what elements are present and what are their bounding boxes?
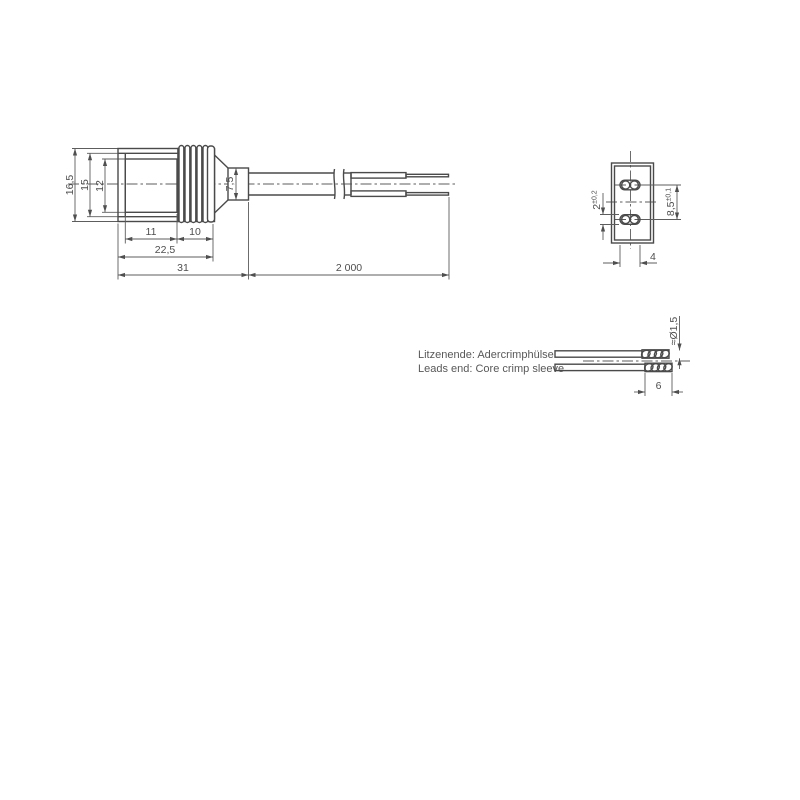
lead-top bbox=[555, 349, 671, 359]
dim-slot-width-4: 4 bbox=[603, 245, 657, 267]
dim-label-31: 31 bbox=[177, 262, 189, 274]
dim-sleeve-length-6: 6 bbox=[634, 373, 683, 396]
dim-height-16-5: 16,5 bbox=[64, 149, 77, 222]
leads bbox=[351, 173, 449, 197]
detail-view: Litzenende: Adercrimphülse Leads end: Co… bbox=[418, 316, 690, 396]
dim-label-22-5: 22,5 bbox=[155, 244, 176, 256]
dim-label-16-5: 16,5 bbox=[64, 175, 76, 196]
note-english: Leads end: Core crimp sleeve bbox=[418, 363, 564, 375]
dim-front-22-5: 22,5 bbox=[118, 244, 213, 259]
dim-height-12: 12 bbox=[94, 159, 107, 212]
dim-label-2000: 2 000 bbox=[336, 262, 362, 274]
dim-face-11: 11 bbox=[125, 226, 177, 241]
rib-section bbox=[178, 146, 215, 223]
dim-height-15: 15 bbox=[79, 153, 92, 216]
note-german: Litzenende: Adercrimphülse bbox=[418, 349, 554, 361]
dim-connector-31: 31 bbox=[118, 262, 249, 277]
lead-bottom bbox=[555, 362, 674, 372]
dim-label-8-5: 8,5±0,1 bbox=[665, 188, 677, 216]
dim-label-12: 12 bbox=[94, 180, 106, 192]
dim-label-sleeve-dia: ≈Ø1,5 bbox=[668, 317, 680, 346]
dim-ribs-10: 10 bbox=[177, 226, 213, 241]
technical-drawing-canvas: 16,5 15 12 7,5 bbox=[0, 0, 800, 800]
dim-label-2: 2±0,2 bbox=[591, 190, 603, 210]
side-view: 16,5 15 12 7,5 bbox=[64, 146, 458, 280]
dim-cable-2000: 2 000 bbox=[249, 262, 450, 277]
end-face bbox=[612, 163, 654, 243]
dim-label-11: 11 bbox=[146, 226, 157, 238]
dim-label-4: 4 bbox=[650, 251, 656, 263]
dim-label-15: 15 bbox=[79, 179, 91, 191]
dim-label-10: 10 bbox=[189, 226, 201, 238]
end-view: 2±0,2 8,5±0,1 4 bbox=[591, 151, 681, 267]
dim-label-6: 6 bbox=[656, 380, 662, 392]
dim-label-7-5: 7,5 bbox=[224, 177, 236, 192]
technical-drawing-page: 16,5 15 12 7,5 bbox=[0, 0, 800, 800]
